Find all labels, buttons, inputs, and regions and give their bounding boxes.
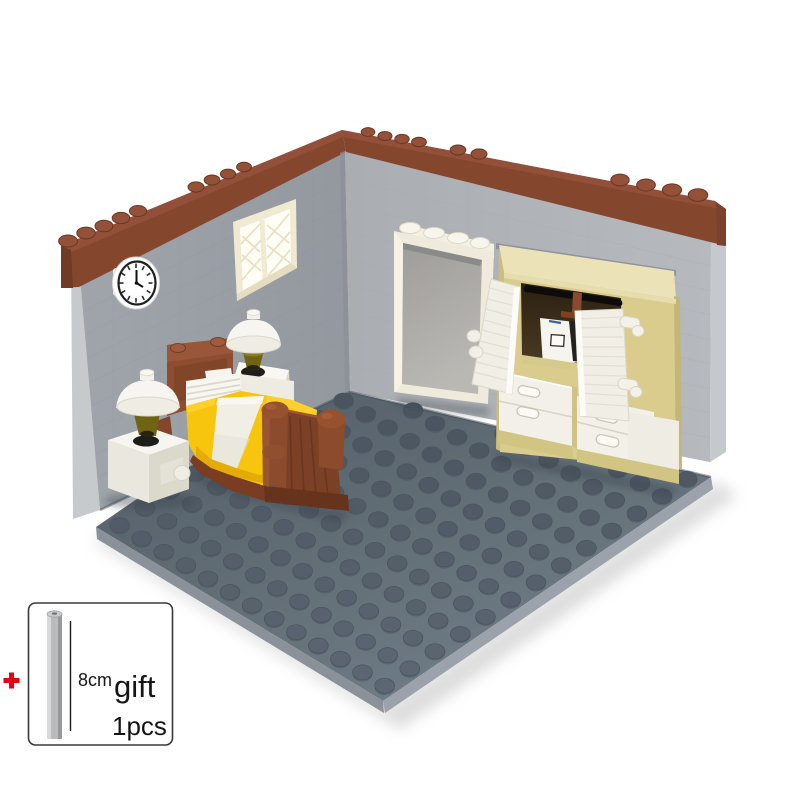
- svg-text:1pcs: 1pcs: [112, 711, 167, 741]
- svg-text:8cm: 8cm: [78, 670, 112, 690]
- svg-text:gift: gift: [114, 669, 156, 704]
